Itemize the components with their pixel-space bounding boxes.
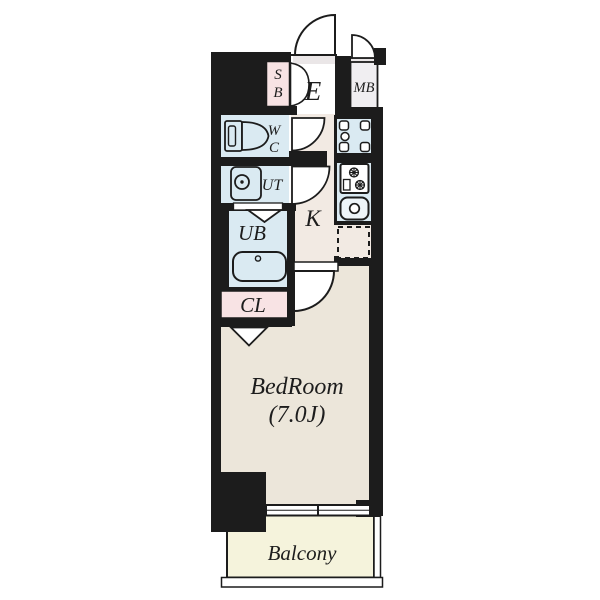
- entrance-label: E: [304, 76, 322, 106]
- wall-left: [211, 115, 221, 478]
- wall-under-closet: [211, 318, 292, 327]
- entrance-door-arc: [295, 15, 335, 55]
- fridge-nook-floor: [337, 225, 371, 258]
- bath-door-panel: [234, 203, 283, 210]
- toilet-icon: [225, 121, 269, 151]
- floor-plan: S B E MB W C UT UB CL K BedRoom (7.0J) B…: [0, 0, 600, 600]
- sliding-window: [266, 505, 370, 516]
- closet-label: CL: [240, 293, 266, 317]
- burner-icon: [355, 180, 365, 190]
- wall-top-left-mass: [211, 52, 267, 115]
- balcony-right-rail: [374, 513, 381, 578]
- burner-icon: [349, 168, 359, 178]
- bedroom-door-panel: [294, 262, 338, 271]
- wc-label-2: C: [269, 140, 280, 156]
- wall-door-divider-stub: [289, 151, 327, 166]
- stove-icon: [341, 164, 369, 193]
- wall-wc-utility: [221, 157, 291, 166]
- bedroom-size-label: (7.0J): [269, 402, 326, 428]
- wc-label-1: W: [268, 123, 282, 139]
- balcony-outer-rim: [222, 578, 383, 588]
- utility-label: UT: [262, 177, 284, 194]
- wall-bath-closet: [221, 287, 292, 291]
- wall-top-over-shoebox: [265, 52, 291, 62]
- floor-plan-page: S B E MB W C UT UB CL K BedRoom (7.0J) B…: [0, 0, 600, 600]
- unit-bath-label: UB: [238, 221, 266, 245]
- shoe-box-label-1: S: [274, 67, 282, 83]
- bedroom-label: BedRoom: [250, 374, 343, 400]
- shoe-box-label-2: B: [273, 85, 282, 101]
- wall-bottom-left-block: [211, 472, 266, 532]
- kitchen-label: K: [304, 206, 322, 231]
- wall-under-entrance: [221, 106, 297, 115]
- balcony-label: Balcony: [268, 541, 337, 565]
- meter-box-label: MB: [353, 80, 375, 96]
- sink-icon: [341, 198, 369, 220]
- wall-bath-left-pad: [221, 203, 229, 291]
- entrance-threshold: [293, 55, 335, 64]
- meter-box-door-arc: [352, 35, 375, 58]
- bathtub-icon: [233, 252, 286, 281]
- wall-entrance-mb-pillar: [335, 56, 351, 112]
